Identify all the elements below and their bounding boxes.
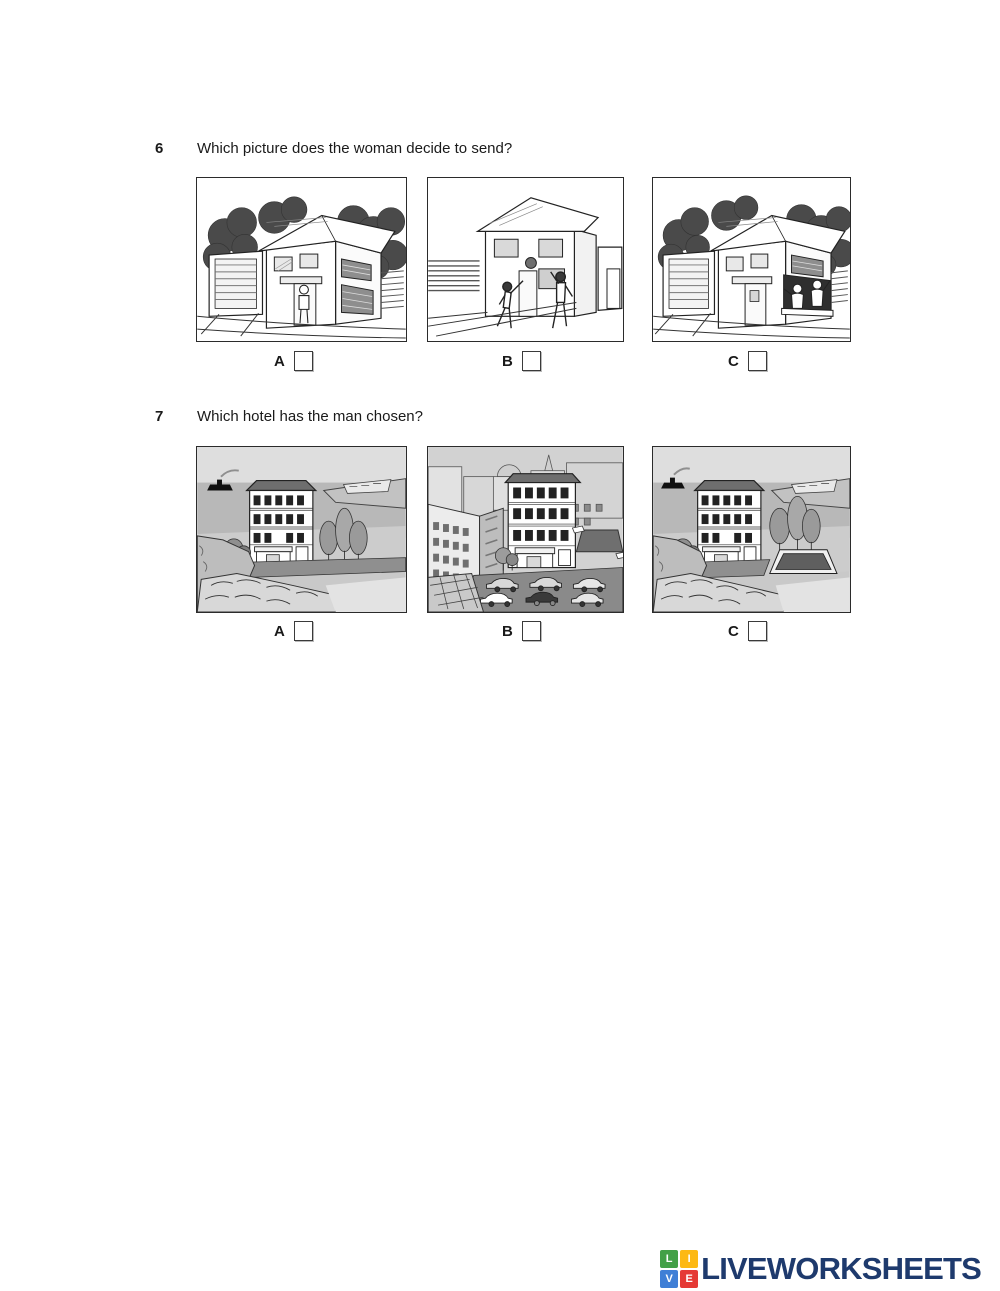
hotel — [247, 481, 316, 566]
question-7-option-b-label: B — [502, 623, 513, 640]
house — [478, 198, 599, 317]
question-7-option-b-checkbox[interactable] — [522, 621, 541, 641]
question-7-text: Which hotel has the man chosen? — [197, 408, 423, 425]
house-window-wave-illustration — [653, 178, 850, 341]
ball — [526, 258, 537, 269]
question-6-text: Which picture does the woman decide to s… — [197, 140, 512, 157]
question-6-option-b-label: B — [502, 353, 513, 370]
logo-tile-e: E — [680, 1270, 698, 1288]
question-7-picture-a — [196, 446, 407, 613]
question-7-option-c-label: C — [728, 623, 739, 640]
question-6-option-c: C — [728, 350, 767, 372]
question-7-option-a-checkbox[interactable] — [294, 621, 313, 641]
fence — [831, 271, 848, 303]
liveworksheets-logo: LIVE LIVEWORKSHEETS — [660, 1250, 981, 1288]
seaside-hotel-illustration — [197, 447, 406, 612]
question-6-header: 6 Which picture does the woman decide to… — [155, 140, 512, 157]
question-6-option-b-checkbox[interactable] — [522, 351, 541, 371]
question-6-number: 6 — [155, 140, 197, 157]
people-at-window — [782, 275, 833, 316]
question-7-picture-b — [427, 446, 624, 613]
liveworksheets-logo-text: LIVEWORKSHEETS — [701, 1251, 981, 1287]
question-6-option-a-checkbox[interactable] — [294, 351, 313, 371]
sky — [197, 447, 405, 485]
garage — [209, 251, 262, 316]
logo-tile-i: I — [680, 1250, 698, 1268]
question-7-number: 7 — [155, 408, 197, 425]
question-7-header: 7 Which hotel has the man chosen? — [155, 408, 423, 425]
question-6-option-c-checkbox[interactable] — [748, 351, 767, 371]
question-7-option-b: B — [502, 620, 541, 642]
hotel — [505, 474, 580, 568]
logo-tile-v: V — [660, 1270, 678, 1288]
question-6-option-b: B — [502, 350, 541, 372]
house-ball-game-illustration — [428, 178, 623, 341]
logo-tile-l: L — [660, 1250, 678, 1268]
hedge — [428, 261, 479, 291]
question-6-picture-c — [652, 177, 851, 342]
sky — [653, 447, 850, 485]
question-7-option-c: C — [728, 620, 767, 642]
swimming-pool — [770, 550, 837, 574]
question-6-option-c-label: C — [728, 353, 739, 370]
liveworksheets-logo-icon: LIVE — [660, 1250, 698, 1288]
hotel — [695, 481, 764, 566]
garage — [598, 247, 622, 310]
seaside-hotel-pool-illustration — [653, 447, 850, 612]
question-7-option-a: A — [274, 620, 313, 642]
worksheet-page: { "questions": [ { "number": "6", "text"… — [0, 0, 1000, 1291]
question-6-option-a-label: A — [274, 353, 285, 370]
question-6-picture-b — [427, 177, 624, 342]
question-7-option-a-label: A — [274, 623, 285, 640]
house-person-at-door-illustration — [197, 178, 406, 341]
town-hotel-illustration — [428, 447, 623, 612]
question-7-picture-c — [652, 446, 851, 613]
question-6-picture-a — [196, 177, 407, 342]
question-7-option-c-checkbox[interactable] — [748, 621, 767, 641]
garage — [663, 251, 714, 316]
question-6-option-a: A — [274, 350, 313, 372]
